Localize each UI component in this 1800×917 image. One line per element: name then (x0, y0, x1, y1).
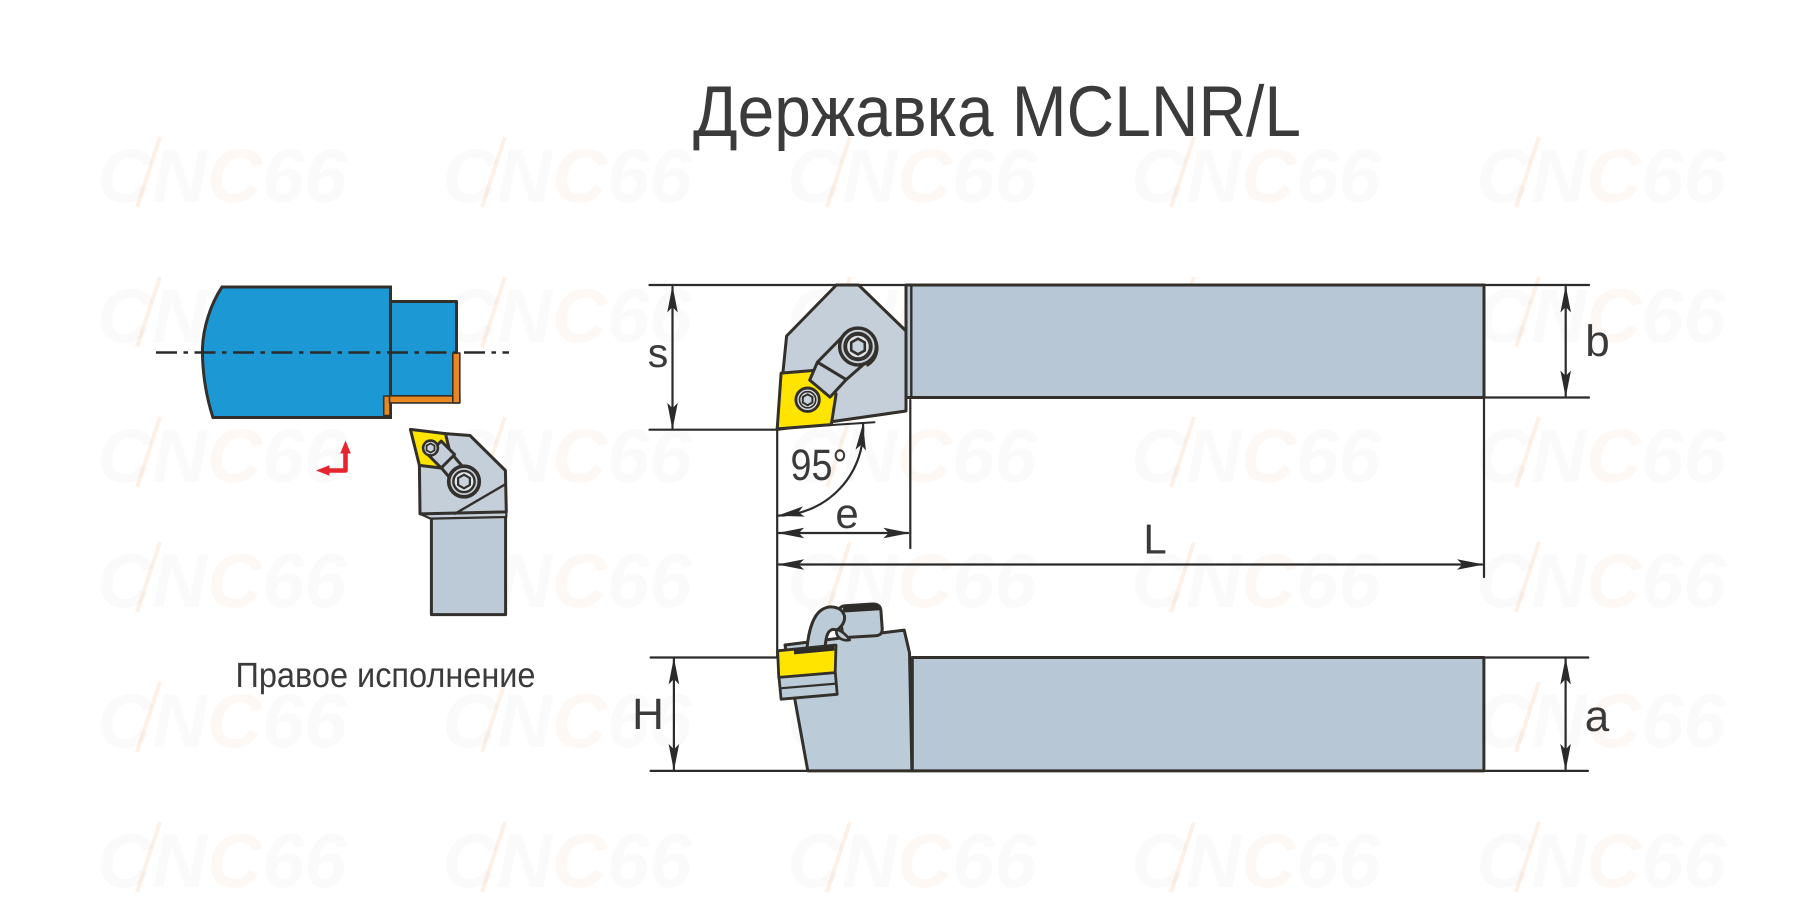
svg-text:L: L (1143, 516, 1166, 563)
svg-text:CNC66: CNC66 (1131, 539, 1381, 624)
svg-text:Державка MCLNR/L: Державка MCLNR/L (693, 72, 1301, 152)
svg-text:CNC66: CNC66 (1476, 414, 1726, 499)
svg-text:s: s (648, 330, 669, 376)
svg-text:95°: 95° (791, 441, 848, 490)
svg-text:Правое исполнение: Правое исполнение (236, 656, 536, 695)
svg-text:CNC66: CNC66 (442, 819, 692, 904)
svg-text:CNC66: CNC66 (1131, 414, 1381, 499)
svg-text:H: H (632, 690, 664, 739)
svg-text:CNC66: CNC66 (1131, 819, 1381, 904)
svg-text:CNC66: CNC66 (1476, 539, 1726, 624)
svg-text:CNC66: CNC66 (97, 134, 347, 219)
svg-text:CNC66: CNC66 (97, 539, 347, 624)
svg-text:CNC66: CNC66 (787, 819, 1037, 904)
svg-text:e: e (835, 490, 858, 537)
svg-text:a: a (1585, 692, 1610, 741)
svg-text:CNC66: CNC66 (97, 414, 347, 499)
svg-text:CNC66: CNC66 (97, 819, 347, 904)
svg-text:CNC66: CNC66 (1476, 819, 1726, 904)
svg-text:CNC66: CNC66 (442, 134, 692, 219)
svg-text:b: b (1585, 317, 1609, 366)
svg-text:CNC66: CNC66 (1476, 134, 1726, 219)
